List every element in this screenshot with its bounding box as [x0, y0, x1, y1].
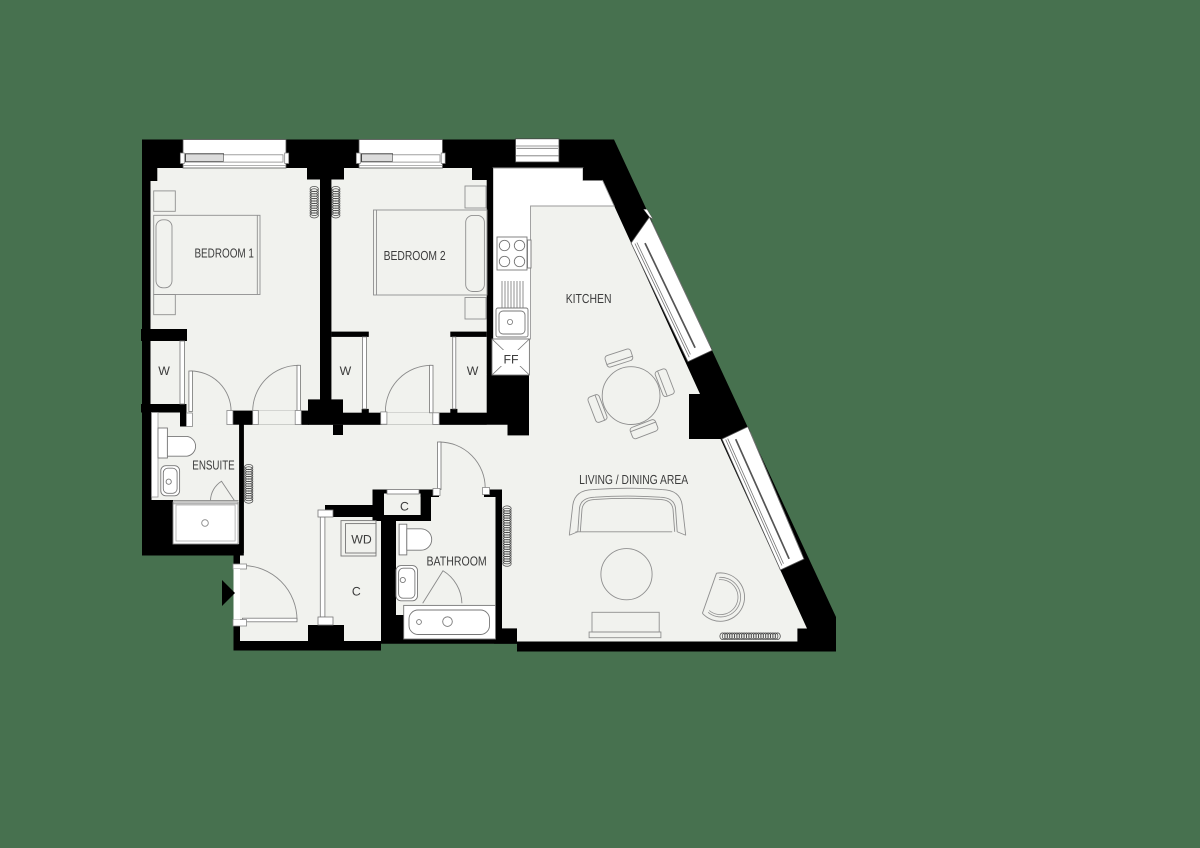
svg-text:W: W: [158, 364, 170, 378]
svg-text:BEDROOM 1: BEDROOM 1: [194, 245, 254, 260]
svg-text:BATHROOM: BATHROOM: [426, 553, 486, 568]
svg-text:ENSUITE: ENSUITE: [192, 458, 235, 473]
svg-text:WD: WD: [351, 533, 372, 547]
svg-text:C: C: [400, 499, 409, 513]
svg-text:BEDROOM 2: BEDROOM 2: [384, 248, 446, 263]
svg-text:C: C: [352, 585, 361, 599]
svg-text:FF: FF: [503, 353, 519, 367]
svg-text:W: W: [467, 364, 479, 378]
svg-text:W: W: [340, 364, 352, 378]
svg-text:LIVING / DINING AREA: LIVING / DINING AREA: [579, 472, 688, 487]
svg-text:KITCHEN: KITCHEN: [566, 291, 612, 306]
